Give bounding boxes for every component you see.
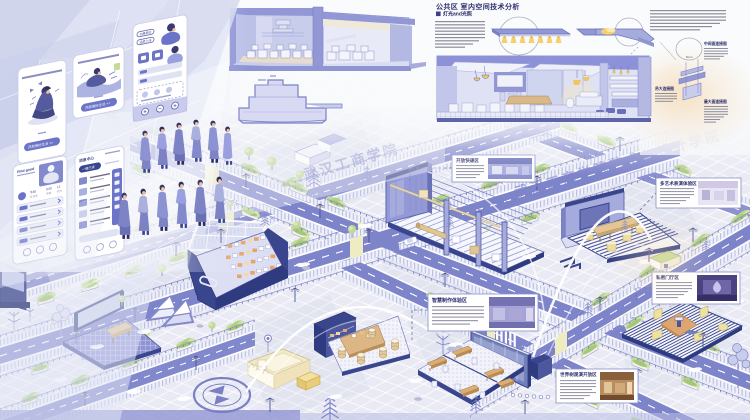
svg-text:5mm: 5mm	[686, 55, 693, 59]
svg-text:灯光and光照: 灯光and光照	[443, 11, 472, 18]
svg-text:吊大连接图: 吊大连接图	[655, 86, 674, 91]
svg-text:智慧制作体验区: 智慧制作体验区	[432, 297, 467, 304]
svg-text:公共区 室内空间技术分析: 公共区 室内空间技术分析	[436, 2, 520, 11]
svg-text:多艺术表演体验区: 多艺术表演体验区	[660, 180, 697, 187]
svg-text:最大面连接图: 最大面连接图	[704, 99, 727, 104]
svg-text:世界树观演开放区: 世界树观演开放区	[560, 371, 597, 378]
svg-text:12: 12	[57, 185, 61, 190]
svg-text:中间面连接图: 中间面连接图	[704, 41, 727, 46]
